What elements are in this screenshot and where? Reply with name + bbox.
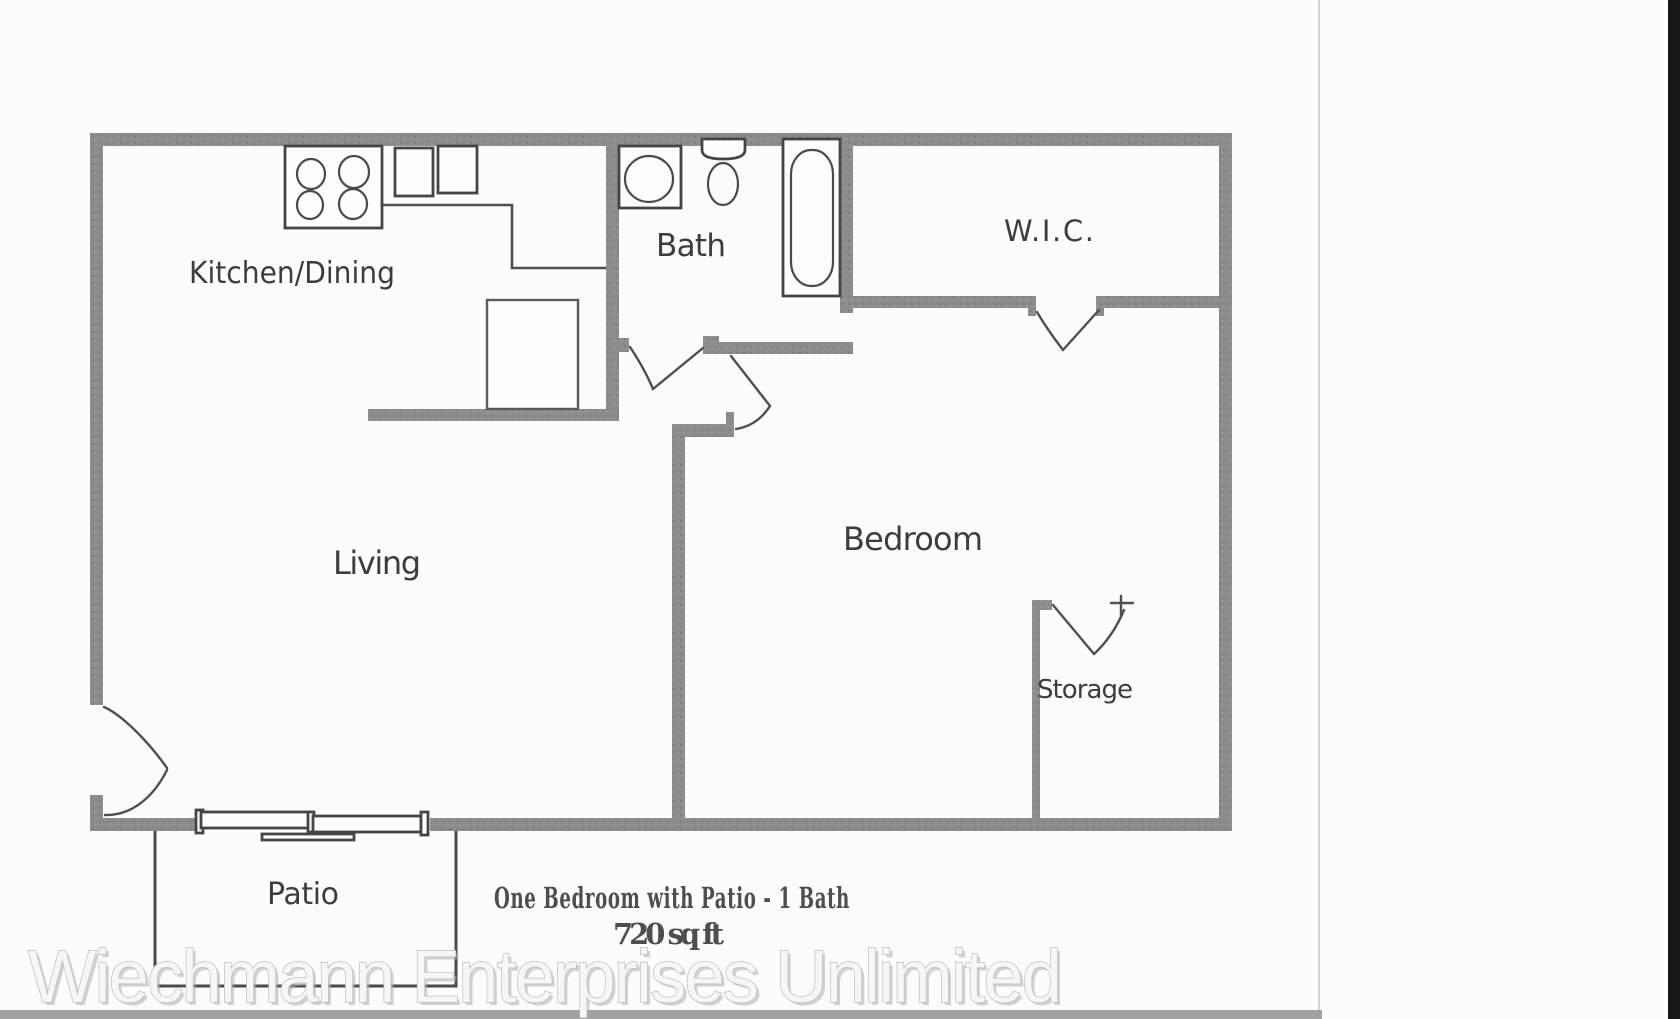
wall-bath-door-jamb	[619, 338, 629, 352]
wall-bedroom-left	[672, 424, 685, 818]
wall-top	[90, 133, 1232, 146]
entry-door-swing	[104, 707, 167, 815]
toilet	[702, 139, 745, 205]
wall-left	[90, 133, 103, 705]
wall-right	[1219, 133, 1232, 831]
room-label-wic: W.I.C.	[1004, 214, 1094, 248]
bathroom-sink	[619, 146, 681, 208]
screen-right-strip	[1668, 0, 1680, 1019]
kitchen-double-sink	[395, 146, 477, 196]
wic-door-swing	[1037, 310, 1099, 350]
floor-plan-canvas: Kitchen/Dining Bath W.I.C. Living Bedroo…	[0, 0, 1680, 1019]
wall-bedroom-door-jamb	[685, 424, 734, 437]
bathtub	[783, 139, 840, 296]
caption-line-1: One Bedroom with Patio - 1 Bath	[494, 881, 850, 915]
kitchen-counter	[383, 205, 606, 268]
wall-kitchen-bottom	[368, 409, 619, 421]
room-label-living: Living	[333, 544, 421, 582]
wall-wic-jamb-left	[1028, 296, 1036, 316]
bath-door-swing	[630, 347, 703, 389]
storage-door-swing	[1053, 596, 1133, 654]
wall-kitchen-divider	[606, 146, 619, 410]
sliding-patio-door	[196, 809, 430, 840]
scanned-floor-plan-page: Kitchen/Dining Bath W.I.C. Living Bedroo…	[0, 0, 1680, 1019]
room-label-bath: Bath	[656, 228, 726, 264]
stove	[285, 146, 382, 228]
room-label-bedroom: Bedroom	[843, 520, 983, 558]
pantry-closet	[487, 300, 578, 409]
room-label-kitchen-dining: Kitchen/Dining	[189, 256, 395, 291]
wall-bath-bottom	[703, 342, 853, 354]
wall-storage-left	[1032, 600, 1040, 818]
wall-bath-wic-divider	[840, 146, 853, 313]
wall-storage-jamb	[1040, 600, 1052, 610]
wall-bedroom-door-tab	[726, 412, 734, 424]
watermark-text: Wiechmann Enterprises Unlimited	[28, 935, 1060, 1018]
wall-wic-bottom-right	[1104, 296, 1219, 308]
bedroom-door-swing	[731, 356, 770, 429]
room-label-patio: Patio	[267, 877, 339, 912]
room-label-storage: Storage	[1037, 675, 1133, 705]
wall-wic-bottom-left	[853, 296, 1028, 308]
